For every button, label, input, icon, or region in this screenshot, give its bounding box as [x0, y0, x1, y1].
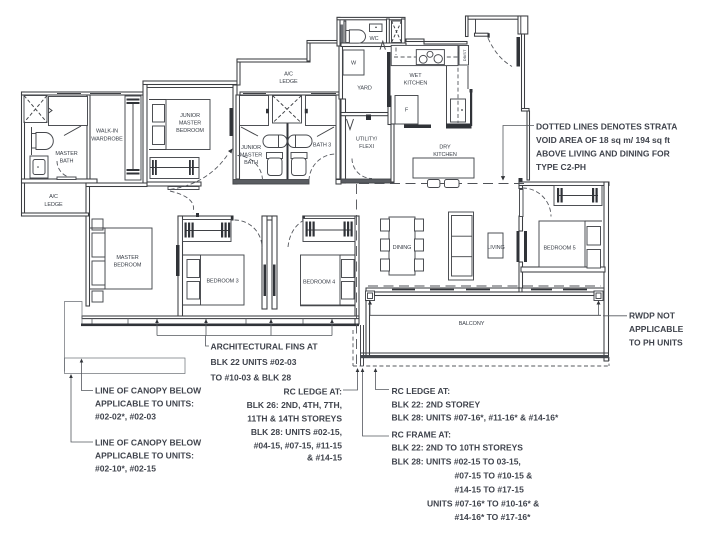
svg-text:UNITS #07-16* TO #10-16* &: UNITS #07-16* TO #10-16* &: [427, 499, 539, 509]
svg-text:LINE OF CANOPY BELOW: LINE OF CANOPY BELOW: [95, 386, 202, 396]
svg-text:APPLICABLE TO UNITS:: APPLICABLE TO UNITS:: [95, 399, 194, 409]
svg-text:A/C: A/C: [49, 194, 58, 200]
svg-text:BLK 22: 2ND STOREY: BLK 22: 2ND STOREY: [392, 400, 481, 410]
svg-text:BLK 28: UNITS #07-16*, #11-16*: BLK 28: UNITS #07-16*, #11-16* & #14-16*: [392, 413, 559, 423]
svg-text:BATH: BATH: [244, 160, 258, 166]
svg-text:APPLICABLE TO UNITS:: APPLICABLE TO UNITS:: [95, 451, 194, 461]
svg-text:BEDROOM 5: BEDROOM 5: [543, 246, 575, 252]
svg-text:BLK 28: UNITS #02-15,: BLK 28: UNITS #02-15,: [251, 427, 342, 437]
svg-text:BEDROOM: BEDROOM: [176, 128, 204, 134]
svg-text:11TH & 14TH STOREYS: 11TH & 14TH STOREYS: [247, 414, 342, 424]
svg-text:BATH 3: BATH 3: [313, 143, 331, 149]
svg-text:MASTER: MASTER: [179, 121, 201, 127]
svg-text:#04-15, #07-15, #11-15: #04-15, #07-15, #11-15: [254, 441, 343, 451]
svg-text:LIVING: LIVING: [487, 245, 504, 251]
svg-text:BEDROOM 3: BEDROOM 3: [206, 279, 238, 285]
svg-text:VOID AREA OF 18 sq m/ 194 sq f: VOID AREA OF 18 sq m/ 194 sq ft: [536, 135, 670, 145]
svg-text:BATH: BATH: [60, 159, 74, 165]
svg-text:LEDGE: LEDGE: [279, 79, 298, 85]
svg-text:ABOVE LIVING AND DINING FOR: ABOVE LIVING AND DINING FOR: [536, 149, 670, 159]
svg-text:#02-10*, #02-15: #02-10*, #02-15: [95, 464, 156, 474]
svg-text:RC LEDGE AT:: RC LEDGE AT:: [283, 387, 342, 397]
svg-text:JUNIOR: JUNIOR: [241, 145, 261, 151]
svg-text:WARDROBE: WARDROBE: [91, 137, 123, 143]
svg-text:APPLICABLE: APPLICABLE: [629, 324, 684, 334]
svg-text:MASTER: MASTER: [240, 153, 262, 159]
svg-text:BEDROOM: BEDROOM: [114, 263, 142, 269]
svg-text:RWDP NOT: RWDP NOT: [629, 311, 676, 321]
svg-text:UTILITY/: UTILITY/: [356, 137, 378, 143]
svg-text:A/C: A/C: [284, 72, 293, 78]
svg-text:BEDROOM 4: BEDROOM 4: [303, 280, 335, 286]
svg-text:ARCHITECTURAL FINS AT: ARCHITECTURAL FINS AT: [211, 342, 319, 352]
svg-text:LINE OF CANOPY BELOW: LINE OF CANOPY BELOW: [95, 438, 202, 448]
svg-text:MASTER: MASTER: [116, 255, 138, 261]
svg-text:LEDGE: LEDGE: [44, 202, 63, 208]
svg-text:RC FRAME AT:: RC FRAME AT:: [392, 430, 452, 440]
svg-text:KITCHEN: KITCHEN: [404, 81, 428, 87]
svg-text:& #14-15: & #14-15: [307, 453, 342, 463]
svg-text:BLK 22 UNITS #02-03: BLK 22 UNITS #02-03: [211, 357, 297, 367]
svg-text:DINING: DINING: [393, 245, 412, 251]
svg-text:JUNIOR: JUNIOR: [180, 113, 200, 119]
svg-text:WET: WET: [410, 73, 423, 79]
svg-text:TO PH UNITS: TO PH UNITS: [629, 338, 683, 348]
svg-text:TYPE C2-PH: TYPE C2-PH: [536, 162, 586, 172]
svg-text:FLEXI: FLEXI: [359, 144, 374, 150]
svg-text:MASTER: MASTER: [55, 151, 77, 157]
svg-text:RC LEDGE AT:: RC LEDGE AT:: [392, 386, 451, 396]
svg-text:KITCHEN: KITCHEN: [433, 152, 457, 158]
svg-text:BALCONY: BALCONY: [459, 321, 485, 327]
svg-text:WC: WC: [370, 36, 379, 42]
svg-text:DB/ST: DB/ST: [462, 49, 467, 61]
svg-text:YARD: YARD: [357, 86, 372, 92]
svg-text:#07-15 TO #10-15 &: #07-15 TO #10-15 &: [455, 471, 533, 481]
svg-text:BLK 26: 2ND, 4TH, 7TH,: BLK 26: 2ND, 4TH, 7TH,: [247, 400, 342, 410]
svg-text:TO #10-03 & BLK 28: TO #10-03 & BLK 28: [211, 373, 292, 383]
svg-text:BLK 28: UNITS #02-15 TO 03-15,: BLK 28: UNITS #02-15 TO 03-15,: [392, 457, 521, 467]
svg-text:DOTTED LINES DENOTES STRATA: DOTTED LINES DENOTES STRATA: [536, 122, 677, 132]
svg-text:#02-02*, #02-03: #02-02*, #02-03: [95, 412, 156, 422]
svg-text:DRY: DRY: [439, 145, 451, 151]
svg-text:#14-16* TO #17-16*: #14-16* TO #17-16*: [455, 512, 532, 522]
svg-text:BLK 22: 2ND TO 10TH STOREYS: BLK 22: 2ND TO 10TH STOREYS: [392, 443, 524, 453]
svg-text:#14-15 TO #17-15: #14-15 TO #17-15: [455, 485, 525, 495]
svg-text:WALK-IN: WALK-IN: [96, 129, 118, 135]
